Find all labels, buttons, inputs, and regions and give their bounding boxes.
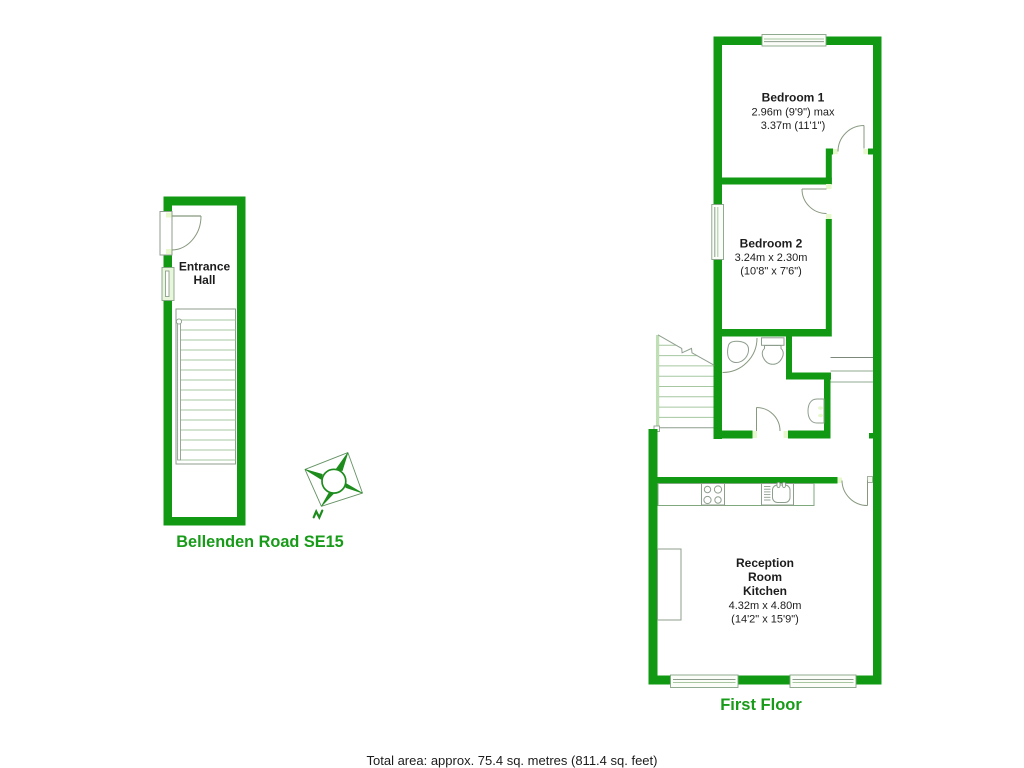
svg-text:2.96m (9'9") max: 2.96m (9'9") max xyxy=(751,107,835,119)
svg-text:(14'2" x 15'9"): (14'2" x 15'9") xyxy=(731,614,799,626)
svg-text:4.32m x 4.80m: 4.32m x 4.80m xyxy=(729,600,802,612)
svg-text:3.24m x 2.30m: 3.24m x 2.30m xyxy=(735,252,808,264)
svg-text:Bellenden Road SE15: Bellenden Road SE15 xyxy=(176,533,343,551)
svg-text:Room: Room xyxy=(748,570,782,584)
svg-text:(10'8" x 7'6"): (10'8" x 7'6") xyxy=(740,266,802,278)
svg-text:First Floor: First Floor xyxy=(720,696,802,714)
svg-text:Entrance: Entrance xyxy=(179,260,231,274)
svg-text:Hall: Hall xyxy=(193,273,215,287)
svg-text:Bedroom 2: Bedroom 2 xyxy=(740,237,803,251)
svg-text:3.37m (11'1"): 3.37m (11'1") xyxy=(761,120,826,132)
svg-text:Kitchen: Kitchen xyxy=(743,584,787,598)
svg-text:Reception: Reception xyxy=(736,556,794,570)
svg-text:Total area: approx. 75.4 sq.: Total area: approx. 75.4 sq. metres (811… xyxy=(367,753,658,768)
svg-text:Bedroom 1: Bedroom 1 xyxy=(762,91,825,105)
